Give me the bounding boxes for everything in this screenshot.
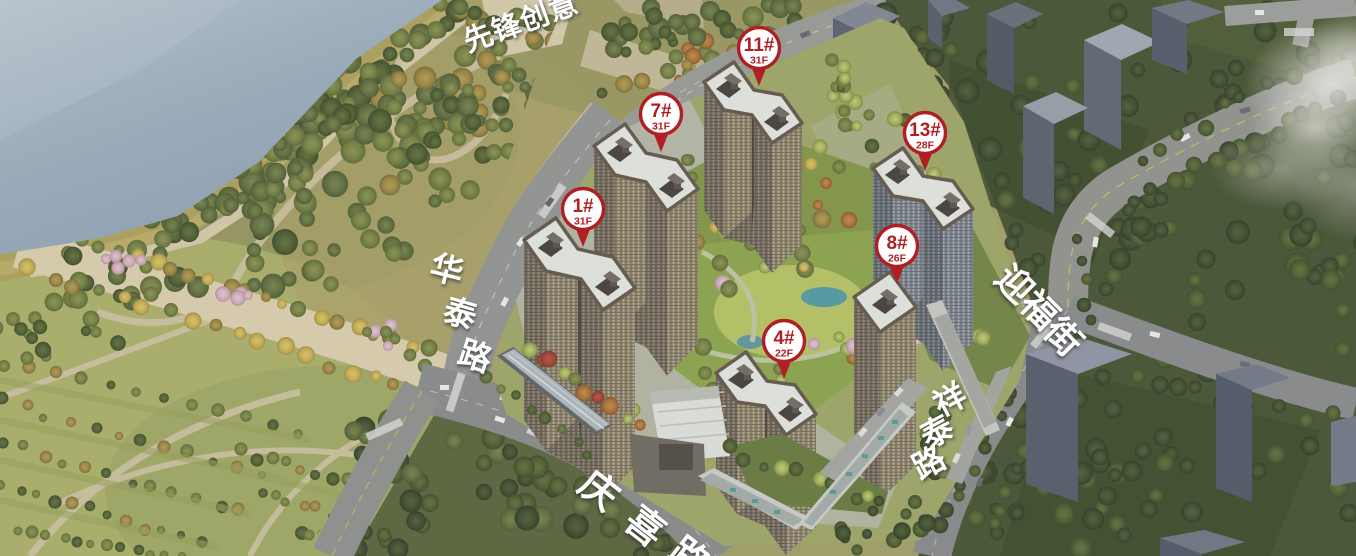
- svg-text:13#: 13#: [909, 120, 941, 141]
- svg-text:31F: 31F: [750, 55, 769, 67]
- svg-text:31F: 31F: [574, 216, 593, 228]
- svg-text:7#: 7#: [650, 101, 672, 122]
- svg-text:22F: 22F: [775, 348, 794, 360]
- svg-text:28F: 28F: [916, 140, 935, 152]
- svg-text:4#: 4#: [773, 328, 795, 349]
- svg-text:26F: 26F: [888, 253, 907, 265]
- svg-text:1#: 1#: [572, 196, 594, 217]
- svg-text:11#: 11#: [744, 35, 775, 56]
- svg-text:31F: 31F: [652, 121, 671, 133]
- svg-text:8#: 8#: [886, 233, 908, 254]
